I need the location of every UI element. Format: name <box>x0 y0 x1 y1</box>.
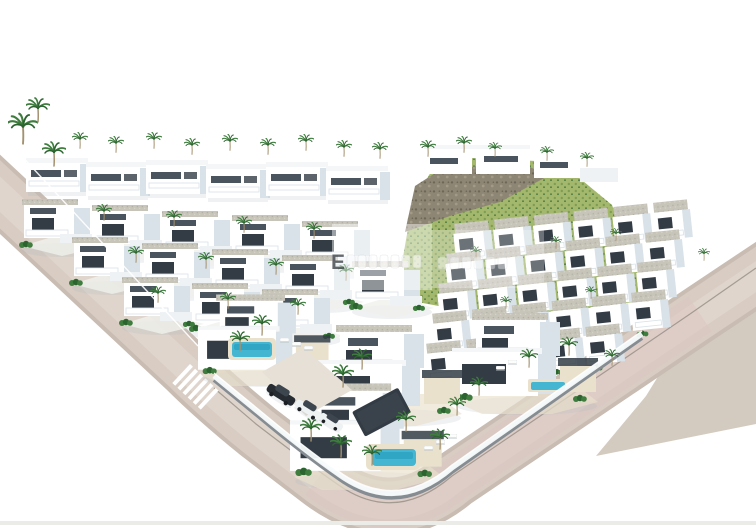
villa <box>206 164 270 202</box>
pool-water-shade <box>375 452 413 459</box>
watermark: E <box>331 224 544 290</box>
pool-water-shade <box>234 344 270 350</box>
bottom-edge-strip <box>0 521 756 525</box>
villa <box>86 162 150 200</box>
development-render: E <box>0 0 756 528</box>
watermark-ghost-text <box>347 255 421 268</box>
villa <box>326 166 390 204</box>
render-canvas: E <box>0 0 756 528</box>
villa <box>266 162 330 200</box>
villa <box>146 160 210 198</box>
villa <box>26 158 90 196</box>
watermark-letter: E <box>331 251 345 274</box>
